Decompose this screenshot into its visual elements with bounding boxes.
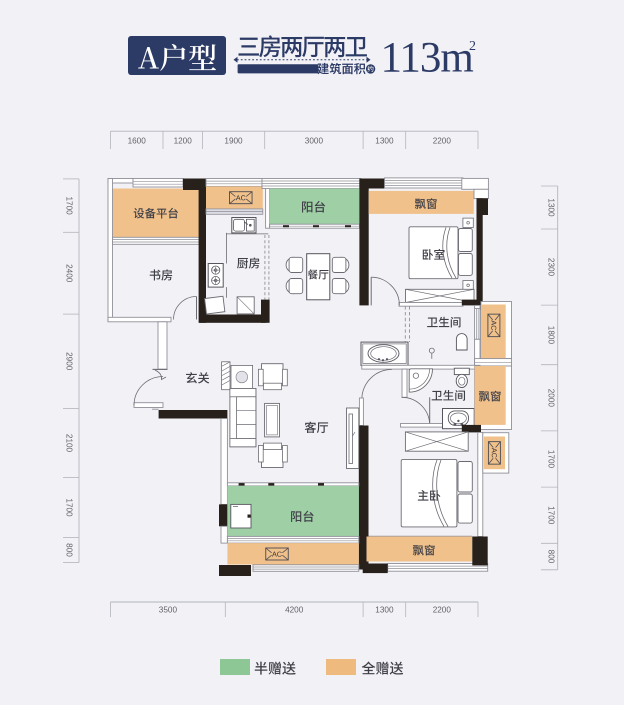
- svg-text:2200: 2200: [433, 137, 452, 146]
- svg-text:2400: 2400: [65, 264, 74, 283]
- svg-text:1600: 1600: [128, 137, 147, 146]
- svg-text:113m: 113m: [381, 35, 474, 82]
- svg-text:1200: 1200: [174, 137, 193, 146]
- svg-text:1300: 1300: [547, 198, 556, 217]
- svg-text:2200: 2200: [433, 606, 452, 615]
- svg-text:2100: 2100: [65, 434, 74, 453]
- svg-text:1800: 1800: [547, 326, 556, 345]
- svg-text:1700: 1700: [547, 450, 556, 469]
- svg-text:3500: 3500: [159, 606, 178, 615]
- svg-text:3000: 3000: [305, 137, 324, 146]
- svg-text:1700: 1700: [65, 196, 74, 215]
- svg-text:4200: 4200: [285, 606, 304, 615]
- svg-text:2: 2: [469, 39, 476, 54]
- svg-text:1300: 1300: [375, 137, 394, 146]
- svg-text:1700: 1700: [65, 498, 74, 517]
- svg-text:800: 800: [65, 543, 74, 557]
- svg-text:1900: 1900: [224, 137, 243, 146]
- svg-text:800: 800: [547, 550, 556, 564]
- svg-text:2900: 2900: [65, 352, 74, 371]
- svg-text:2300: 2300: [547, 258, 556, 277]
- svg-text:1700: 1700: [547, 506, 556, 525]
- svg-text:1300: 1300: [375, 606, 394, 615]
- svg-text:2000: 2000: [547, 389, 556, 408]
